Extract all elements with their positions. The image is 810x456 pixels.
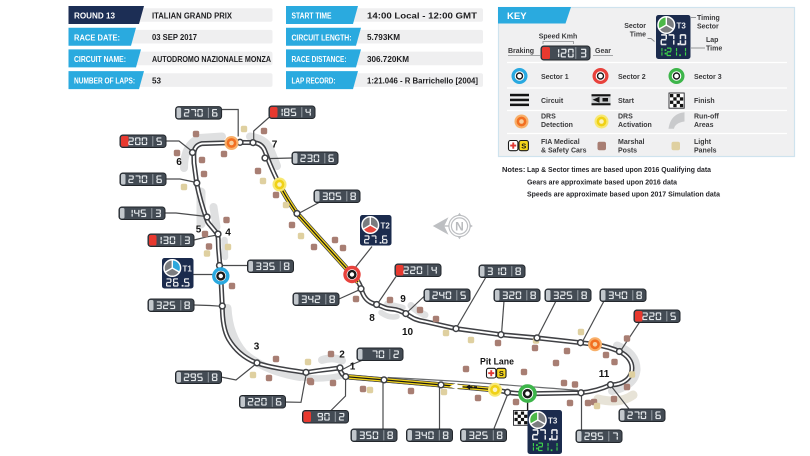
svg-text:Sector 2: Sector 2 <box>618 74 646 81</box>
svg-text:START TIME: START TIME <box>292 12 333 21</box>
svg-text:Sector 3: Sector 3 <box>694 74 722 81</box>
svg-text:T3: T3 <box>548 417 558 426</box>
svg-text:1:21.046 - R Barrichello [2004: 1:21.046 - R Barrichello [2004] <box>367 77 478 86</box>
svg-text:6: 6 <box>176 157 182 168</box>
svg-text:9: 9 <box>400 294 406 305</box>
svg-text:LAP RECORD:: LAP RECORD: <box>292 77 336 86</box>
svg-text:T1: T1 <box>183 265 193 274</box>
svg-text:KEY: KEY <box>507 11 527 22</box>
svg-text:Timing: Timing <box>697 15 720 22</box>
svg-text:Start: Start <box>618 98 635 105</box>
svg-text:7: 7 <box>272 140 278 151</box>
svg-text:Speeds are approximate based u: Speeds are approximate based upon 2017 S… <box>527 190 721 199</box>
svg-text:Finish: Finish <box>694 98 715 105</box>
svg-text:1: 1 <box>350 362 356 373</box>
svg-text:Posts: Posts <box>618 148 637 155</box>
svg-text:03 SEP 2017: 03 SEP 2017 <box>152 33 198 42</box>
svg-text:& Safety Cars: & Safety Cars <box>541 148 587 155</box>
svg-text:Notes:: Notes: <box>502 165 525 174</box>
svg-text:5.793KM: 5.793KM <box>367 33 400 42</box>
svg-text:53: 53 <box>152 77 162 86</box>
svg-text:DRS: DRS <box>541 114 556 121</box>
svg-text:S: S <box>499 369 504 378</box>
svg-text:CIRCUIT LENGTH:: CIRCUIT LENGTH: <box>292 33 352 42</box>
svg-text:Detection: Detection <box>541 122 573 129</box>
svg-text:Time: Time <box>630 32 646 39</box>
svg-text:Braking: Braking <box>508 48 534 55</box>
svg-text:306.720KM: 306.720KM <box>367 55 409 64</box>
svg-text:3: 3 <box>254 342 260 353</box>
svg-text:4: 4 <box>225 228 231 239</box>
svg-text:DRS: DRS <box>618 114 633 121</box>
svg-text:RACE DATE:: RACE DATE: <box>74 33 120 42</box>
svg-text:FIA Medical: FIA Medical <box>541 139 580 146</box>
svg-text:14:00 Local - 12:00 GMT: 14:00 Local - 12:00 GMT <box>367 11 477 20</box>
svg-text:T2: T2 <box>381 222 391 231</box>
svg-text:AUTODROMO NAZIONALE MONZA: AUTODROMO NAZIONALE MONZA <box>152 55 271 64</box>
svg-text:11: 11 <box>599 369 610 380</box>
svg-text:Gear: Gear <box>595 48 611 55</box>
svg-text:Time: Time <box>706 46 722 53</box>
svg-text:Activation: Activation <box>618 122 652 129</box>
svg-text:10: 10 <box>402 327 414 338</box>
svg-text:Panels: Panels <box>694 148 717 155</box>
svg-text:ITALIAN GRAND PRIX: ITALIAN GRAND PRIX <box>152 11 233 20</box>
svg-text:8: 8 <box>369 313 375 324</box>
svg-text:NUMBER OF LAPS:: NUMBER OF LAPS: <box>74 77 135 86</box>
svg-text:2: 2 <box>339 350 345 361</box>
svg-text:Sector: Sector <box>624 23 646 30</box>
svg-text:Lap & Sector times are based u: Lap & Sector times are based upon 2016 Q… <box>527 165 712 174</box>
svg-text:T3: T3 <box>677 22 687 31</box>
svg-text:Marshal: Marshal <box>618 139 645 146</box>
svg-text:CIRCUIT NAME:: CIRCUIT NAME: <box>74 55 126 64</box>
svg-text:N: N <box>455 220 464 234</box>
svg-text:Areas: Areas <box>694 122 714 129</box>
svg-text:Light: Light <box>694 139 712 146</box>
svg-text:5: 5 <box>196 225 202 236</box>
svg-text:S: S <box>521 142 526 151</box>
svg-text:Sector: Sector <box>697 24 719 31</box>
svg-text:Gears are approximate based up: Gears are approximate based upon 2016 da… <box>527 178 678 187</box>
svg-text:ROUND 13: ROUND 13 <box>74 12 116 21</box>
svg-text:RACE DISTANCE:: RACE DISTANCE: <box>292 55 347 64</box>
svg-text:Lap: Lap <box>706 37 718 44</box>
svg-text:Sector 1: Sector 1 <box>541 74 569 81</box>
svg-text:Run-off: Run-off <box>694 114 720 121</box>
svg-text:Pit Lane: Pit Lane <box>480 357 514 367</box>
svg-text:Speed Kmh: Speed Kmh <box>539 34 578 41</box>
svg-text:Circuit: Circuit <box>541 98 564 105</box>
